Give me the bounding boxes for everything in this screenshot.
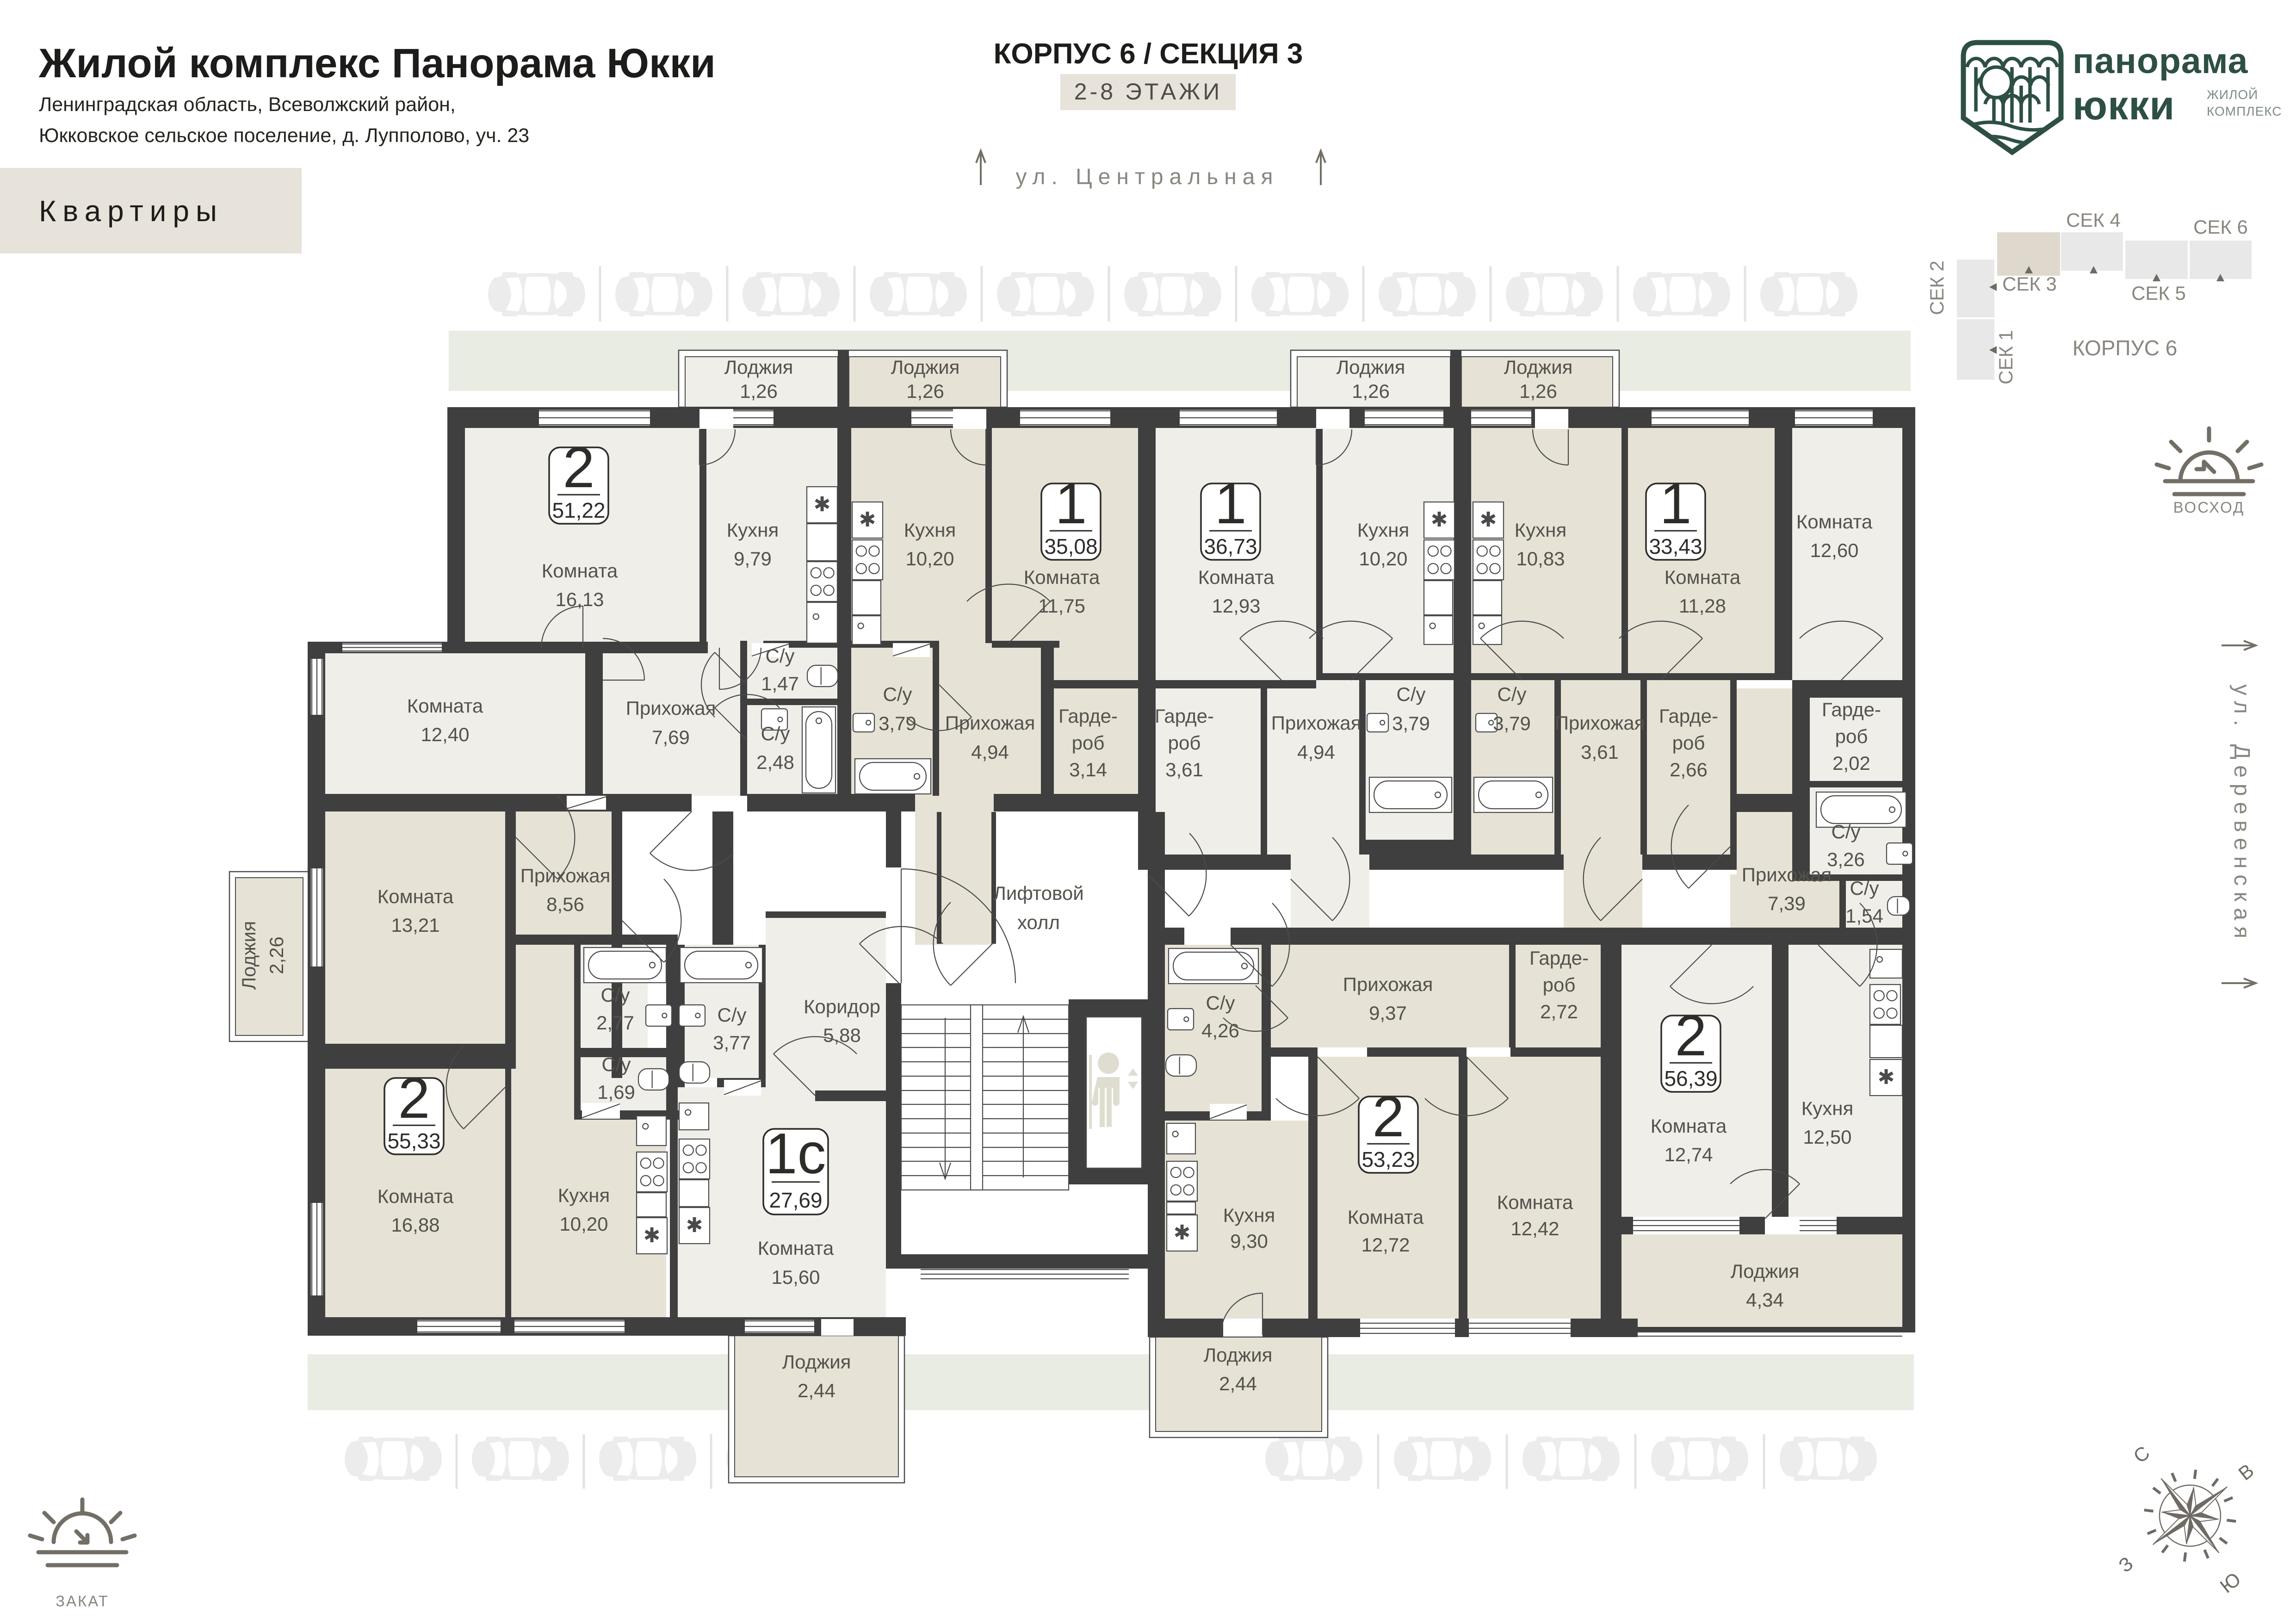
- svg-text:Гарде-: Гарде-: [1529, 947, 1589, 969]
- svg-text:3,61: 3,61: [1581, 741, 1619, 763]
- svg-text:Гарде-: Гарде-: [1058, 705, 1118, 727]
- svg-text:2,66: 2,66: [1670, 759, 1708, 781]
- svg-text:КОРПУС 6: КОРПУС 6: [2073, 336, 2178, 360]
- svg-text:Прихожая: Прихожая: [1742, 864, 1832, 886]
- svg-text:СЕК 3: СЕК 3: [2002, 273, 2057, 295]
- svg-text:2: 2: [1373, 1085, 1405, 1149]
- svg-text:Прихожая: Прихожая: [1271, 712, 1362, 734]
- svg-text:4,94: 4,94: [1297, 741, 1335, 763]
- svg-text:ул. Центральная: ул. Центральная: [1016, 165, 1279, 189]
- svg-text:Прихожая: Прихожая: [520, 865, 611, 886]
- svg-text:33,43: 33,43: [1649, 534, 1702, 558]
- svg-text:5,88: 5,88: [823, 1024, 861, 1046]
- svg-text:СЕК 6: СЕК 6: [2193, 216, 2248, 238]
- svg-text:7,39: 7,39: [1768, 892, 1806, 914]
- svg-text:Комната: Комната: [1348, 1206, 1424, 1228]
- svg-text:12,74: 12,74: [1664, 1144, 1713, 1165]
- svg-text:4,26: 4,26: [1201, 1020, 1239, 1041]
- svg-text:Прихожая: Прихожая: [945, 712, 1035, 734]
- svg-text:роб: роб: [1072, 732, 1105, 754]
- svg-text:3,14: 3,14: [1069, 759, 1107, 781]
- svg-text:Лоджия: Лоджия: [782, 1351, 851, 1373]
- svg-text:роб: роб: [1543, 974, 1576, 996]
- svg-text:роб: роб: [1835, 725, 1868, 747]
- svg-text:3,79: 3,79: [1493, 712, 1531, 734]
- svg-text:С/у: С/у: [761, 723, 790, 744]
- svg-text:Квартиры: Квартиры: [39, 194, 223, 228]
- svg-text:КОМПЛЕКС: КОМПЛЕКС: [2207, 104, 2282, 118]
- svg-text:4,34: 4,34: [1746, 1289, 1784, 1311]
- svg-text:1: 1: [1055, 472, 1087, 536]
- svg-text:Юкковское сельское поселение,: Юкковское сельское поселение, д. Лупполо…: [39, 124, 529, 147]
- svg-text:Коридор: Коридор: [804, 996, 880, 1017]
- svg-text:СЕК 1: СЕК 1: [1995, 330, 2017, 384]
- svg-text:10,20: 10,20: [1359, 548, 1407, 570]
- svg-text:9,37: 9,37: [1369, 1002, 1407, 1024]
- svg-text:Комната: Комната: [1665, 566, 1741, 588]
- svg-text:2,48: 2,48: [756, 751, 794, 773]
- svg-text:53,23: 53,23: [1362, 1147, 1415, 1171]
- svg-text:Гарде-: Гарде-: [1822, 699, 1881, 720]
- svg-text:СЕК 5: СЕК 5: [2131, 282, 2186, 304]
- svg-text:2-8 ЭТАЖИ: 2-8 ЭТАЖИ: [1074, 79, 1222, 105]
- svg-text:51,22: 51,22: [552, 498, 605, 522]
- svg-text:1: 1: [1215, 472, 1247, 536]
- svg-text:С/у: С/у: [601, 984, 630, 1006]
- svg-text:55,33: 55,33: [387, 1129, 440, 1153]
- svg-text:8,56: 8,56: [546, 893, 584, 915]
- svg-text:Комната: Комната: [378, 1185, 454, 1207]
- svg-text:С/у: С/у: [1850, 877, 1879, 899]
- svg-text:2: 2: [1675, 1004, 1707, 1068]
- svg-text:С/у: С/у: [1397, 683, 1426, 705]
- svg-text:2,72: 2,72: [1540, 1001, 1578, 1022]
- svg-text:56,39: 56,39: [1664, 1066, 1717, 1090]
- svg-text:12,42: 12,42: [1510, 1218, 1559, 1239]
- svg-text:Комната: Комната: [407, 695, 483, 717]
- svg-text:2,77: 2,77: [596, 1012, 634, 1034]
- svg-text:Кухня: Кухня: [1357, 519, 1409, 541]
- svg-text:С/у: С/у: [1206, 992, 1235, 1014]
- svg-text:3,79: 3,79: [879, 712, 916, 734]
- svg-text:3,61: 3,61: [1165, 759, 1203, 781]
- svg-text:12,50: 12,50: [1803, 1126, 1851, 1148]
- svg-text:Комната: Комната: [758, 1237, 834, 1259]
- svg-text:Комната: Комната: [1198, 566, 1275, 588]
- svg-text:С/у: С/у: [883, 683, 912, 705]
- svg-text:3,79: 3,79: [1392, 712, 1430, 734]
- svg-text:панорама: панорама: [2073, 41, 2248, 81]
- svg-text:9,79: 9,79: [734, 548, 772, 570]
- svg-text:2,44: 2,44: [1219, 1373, 1257, 1394]
- svg-text:СЕК 4: СЕК 4: [2066, 209, 2121, 231]
- svg-text:Прихожая: Прихожая: [1343, 973, 1433, 995]
- svg-text:11,28: 11,28: [1679, 595, 1726, 617]
- svg-text:7,69: 7,69: [652, 726, 690, 748]
- svg-text:10,20: 10,20: [559, 1213, 608, 1235]
- svg-text:1,54: 1,54: [1845, 905, 1883, 927]
- svg-text:1,26: 1,26: [1352, 380, 1390, 402]
- svg-text:10,83: 10,83: [1516, 548, 1565, 570]
- svg-text:Комната: Комната: [1024, 566, 1100, 588]
- svg-text:2: 2: [563, 436, 595, 500]
- svg-text:Кухня: Кухня: [1223, 1204, 1275, 1226]
- svg-text:роб: роб: [1672, 732, 1705, 754]
- svg-text:✱: ✱: [1878, 1066, 1895, 1089]
- svg-text:15,60: 15,60: [771, 1266, 820, 1288]
- svg-text:3,77: 3,77: [713, 1032, 751, 1053]
- svg-text:С/у: С/у: [718, 1004, 747, 1026]
- svg-text:✱: ✱: [1174, 1221, 1191, 1244]
- svg-text:3,26: 3,26: [1827, 849, 1865, 870]
- svg-text:1,26: 1,26: [740, 380, 778, 402]
- svg-text:2,44: 2,44: [798, 1380, 835, 1401]
- svg-text:12,60: 12,60: [1810, 539, 1858, 561]
- svg-text:Комната: Комната: [542, 560, 618, 582]
- svg-text:Ленинградская область, Всеволж: Ленинградская область, Всеволжский район…: [39, 93, 456, 116]
- svg-text:Гарде-: Гарде-: [1155, 705, 1214, 727]
- svg-text:холл: холл: [1017, 911, 1060, 933]
- svg-text:роб: роб: [1168, 732, 1201, 754]
- svg-text:1,69: 1,69: [597, 1081, 635, 1103]
- svg-text:2,26: 2,26: [266, 936, 287, 974]
- svg-text:Прихожая: Прихожая: [1555, 712, 1645, 734]
- svg-text:С/у: С/у: [1498, 683, 1527, 705]
- svg-text:16,88: 16,88: [391, 1214, 439, 1236]
- svg-text:КОРПУС 6 / СЕКЦИЯ 3: КОРПУС 6 / СЕКЦИЯ 3: [994, 38, 1303, 70]
- svg-text:С/у: С/у: [766, 645, 795, 667]
- svg-text:юкки: юкки: [2073, 82, 2175, 128]
- svg-text:Комната: Комната: [1651, 1115, 1727, 1137]
- svg-text:12,93: 12,93: [1212, 595, 1260, 617]
- svg-text:✱: ✱: [814, 493, 831, 516]
- svg-text:✱: ✱: [1480, 508, 1497, 531]
- svg-text:12,40: 12,40: [421, 724, 469, 745]
- svg-text:✱: ✱: [686, 1214, 703, 1237]
- svg-text:Кухня: Кухня: [1801, 1097, 1853, 1119]
- svg-text:С/у: С/у: [602, 1053, 631, 1075]
- svg-text:Лоджия: Лоджия: [238, 921, 260, 990]
- svg-text:Гарде-: Гарде-: [1659, 705, 1718, 727]
- svg-text:Комната: Комната: [378, 886, 454, 907]
- svg-text:Кухня: Кухня: [904, 519, 956, 541]
- svg-text:Лоджия: Лоджия: [1731, 1260, 1800, 1282]
- svg-text:Лоджия: Лоджия: [1337, 356, 1405, 378]
- svg-text:1,26: 1,26: [1519, 380, 1557, 402]
- svg-text:СЕК 2: СЕК 2: [1926, 260, 1948, 315]
- svg-text:9,30: 9,30: [1230, 1230, 1268, 1252]
- svg-text:ЖИЛОЙ: ЖИЛОЙ: [2207, 87, 2258, 102]
- svg-text:36,73: 36,73: [1204, 534, 1257, 558]
- svg-text:С/у: С/у: [1832, 821, 1861, 842]
- svg-text:2,02: 2,02: [1832, 752, 1870, 774]
- svg-text:Лоджия: Лоджия: [891, 356, 960, 378]
- svg-text:Кухня: Кухня: [558, 1184, 610, 1206]
- svg-text:10,20: 10,20: [905, 548, 954, 570]
- svg-text:4,94: 4,94: [971, 741, 1009, 763]
- svg-text:Лифтовой: Лифтовой: [993, 882, 1083, 904]
- svg-text:12,72: 12,72: [1361, 1234, 1410, 1256]
- svg-text:✱: ✱: [644, 1224, 661, 1247]
- svg-text:1,47: 1,47: [761, 673, 799, 694]
- svg-text:Лоджия: Лоджия: [1204, 1344, 1273, 1366]
- svg-text:ул. Деревенская: ул. Деревенская: [2229, 684, 2254, 944]
- svg-text:Кухня: Кухня: [1515, 519, 1566, 541]
- svg-text:13,21: 13,21: [391, 914, 439, 936]
- svg-text:✱: ✱: [1431, 508, 1448, 531]
- svg-text:27,69: 27,69: [769, 1188, 822, 1212]
- svg-text:Жилой комплекс Панорама Юкки: Жилой комплекс Панорама Юкки: [38, 40, 716, 86]
- svg-text:ВОСХОД: ВОСХОД: [2173, 499, 2245, 516]
- svg-text:11,75: 11,75: [1038, 595, 1085, 617]
- svg-text:Комната: Комната: [1497, 1191, 1573, 1213]
- svg-text:16,13: 16,13: [555, 588, 604, 610]
- svg-text:Комната: Комната: [1796, 511, 1873, 533]
- svg-text:✱: ✱: [859, 508, 876, 531]
- svg-text:Прихожая: Прихожая: [626, 697, 716, 719]
- svg-text:1с: 1с: [766, 1122, 826, 1186]
- svg-text:Кухня: Кухня: [727, 519, 779, 541]
- svg-text:35,08: 35,08: [1044, 534, 1097, 558]
- svg-text:Лоджия: Лоджия: [1504, 356, 1573, 378]
- svg-text:2: 2: [398, 1066, 430, 1130]
- svg-text:Лоджия: Лоджия: [724, 356, 793, 378]
- svg-text:1,26: 1,26: [906, 380, 944, 402]
- svg-text:ЗАКАТ: ЗАКАТ: [56, 1592, 109, 1610]
- svg-text:1: 1: [1660, 472, 1692, 536]
